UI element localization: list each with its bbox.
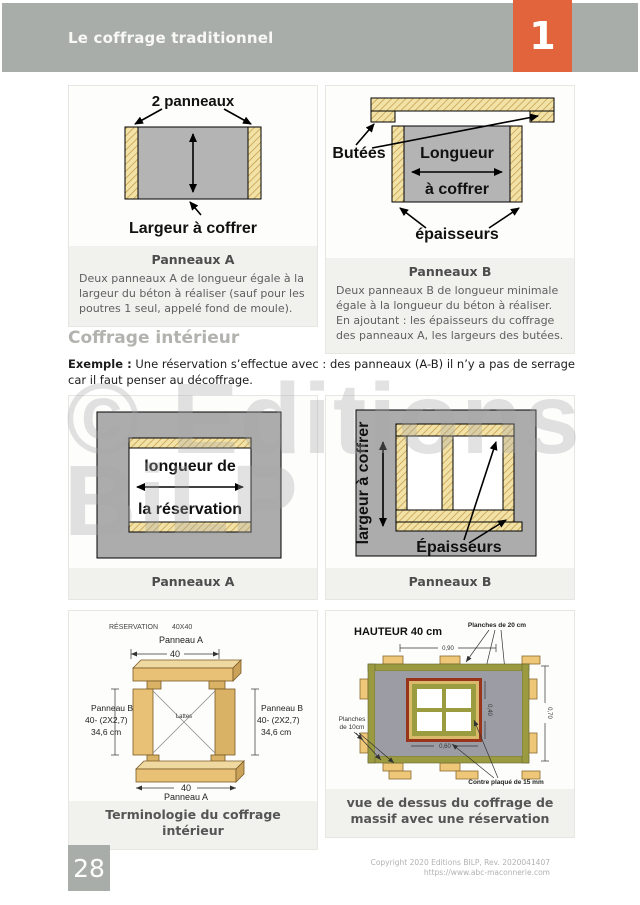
example-paragraph: Exemple : Une réservation s’effectue ave…	[68, 357, 575, 388]
figure-label-la-reservation: la réservation	[138, 501, 242, 518]
figure-label-reservation: RÉSERVATION	[109, 622, 158, 631]
figure-panneaux-b-top: Butées Longueur à coffrer épaisseurs	[326, 86, 574, 258]
board-bottom-face	[136, 761, 244, 769]
figure-card-vue-dessus: HAUTEUR 40 cm Planches de 20 cm 0,90	[325, 610, 575, 838]
figure-label-planches-20: Planches de 20 cm	[468, 622, 526, 629]
board-right	[215, 689, 235, 755]
example-text: Une réservation s’effectue avec : des pa…	[68, 357, 575, 387]
leader-arrow	[489, 208, 519, 228]
figure-label-panneau-b-left3: 34,6 cm	[91, 727, 121, 737]
dim-window-v: 0,40	[486, 704, 492, 716]
figure-caption: Panneaux A	[69, 568, 317, 599]
wood-panel-right	[510, 126, 522, 202]
butee-left	[371, 111, 395, 122]
figure-label-panneau-a-bottom: Panneau A	[164, 792, 208, 801]
figure-label-panneau-b-left2: 40- (2X2,7)	[85, 715, 128, 725]
example-label: Exemple :	[68, 357, 132, 371]
leader-arrow	[135, 109, 162, 124]
wood-bar-middle	[442, 436, 453, 510]
section-heading: Coffrage intérieur	[68, 328, 239, 348]
figure-label-planches-10-line2: de 10cm	[340, 724, 365, 731]
chapter-number-badge: 1	[513, 0, 572, 72]
leader-arrow	[190, 202, 201, 215]
cleat	[209, 681, 225, 689]
caption-title: Panneaux B	[336, 264, 564, 279]
wood-bar-top	[396, 424, 514, 436]
leader-arrow	[356, 124, 374, 145]
figure-reservation-panneaux-a: longueur de la réservation	[69, 396, 317, 568]
figure-label-epaisseurs: épaisseurs	[415, 226, 499, 243]
figure-label-2-panneaux: 2 panneaux	[152, 93, 235, 110]
figure-label-panneau-b-right3: 34,6 cm	[261, 727, 291, 737]
figure-card-panneaux-a-top: 2 panneaux Largeur à coffrer Panneaux A …	[68, 85, 318, 327]
figure-label-epaisseurs: Épaisseurs	[416, 537, 501, 556]
figure-label-longueur: Longueur	[420, 145, 494, 162]
copyright-line2: https://www.abc-maconnerie.com	[371, 868, 550, 878]
page-number: 28	[68, 845, 110, 891]
figure-label-hauteur: HAUTEUR 40 cm	[354, 626, 442, 638]
caption-title: Panneaux A	[79, 574, 307, 589]
leader-arrow	[224, 109, 251, 124]
dim-top: 0,90	[442, 646, 454, 652]
wood-bar-right	[503, 436, 514, 510]
figure-label-planches-10-line1: Planches	[339, 716, 366, 723]
copyright-line1: Copyright 2020 Editions BILP, Rev. 20200…	[371, 858, 550, 868]
wood-bar-left	[396, 436, 407, 510]
wood-panel-left	[125, 127, 138, 199]
dim-window-h: 0,60	[439, 744, 451, 750]
figure-reservation-panneaux-b: largeur à coffrer Épaisseurs	[326, 396, 574, 568]
figure-card-panneaux-b-mid: largeur à coffrer Épaisseurs Panneaux B	[325, 395, 575, 600]
caption-text: Deux panneaux A de longueur égale à la l…	[79, 271, 307, 316]
caption-title: Terminologie du coffrage intérieur	[79, 807, 307, 839]
cleat	[147, 681, 161, 689]
figure-label-a-coffrer: à coffrer	[425, 181, 489, 198]
figure-label-panneau-a-top: Panneau A	[159, 635, 203, 645]
caption-text: Deux panneaux B de longueur minimale éga…	[336, 283, 564, 343]
board-left	[133, 689, 153, 755]
figure-caption: vue de dessus du coffrage de massif avec…	[326, 789, 574, 837]
board-top-face	[133, 660, 241, 668]
leader-arrow	[400, 208, 426, 228]
figure-card-panneaux-a-mid: longueur de la réservation Panneaux A	[68, 395, 318, 600]
figure-label-size: 40X40	[172, 624, 192, 631]
wood-bar-bottom2	[396, 522, 522, 531]
figure-label-contreplaque: Contre plaqué de 15 mm	[468, 779, 544, 786]
figure-label-lattes: Lattes	[176, 714, 192, 720]
figure-caption: Panneaux B	[326, 568, 574, 599]
wood-panel-top	[129, 438, 251, 448]
figure-card-terminologie: RÉSERVATION 40X40 Panneau A 40	[68, 610, 318, 850]
wood-bar-bottom	[396, 510, 514, 522]
caption-title: Panneaux A	[79, 252, 307, 267]
figure-label-largeur: Largeur à coffrer	[129, 220, 257, 237]
dim-right: 0,70	[546, 707, 552, 719]
board-bottom-front	[136, 769, 236, 782]
figure-terminologie: RÉSERVATION 40X40 Panneau A 40	[69, 611, 317, 801]
figure-caption: Terminologie du coffrage intérieur	[69, 801, 317, 849]
figure-label-panneau-b-right1: Panneau B	[261, 703, 303, 713]
document-page: Le coffrage traditionnel 1 2 panneaux La…	[0, 0, 640, 905]
figure-vue-dessus: HAUTEUR 40 cm Planches de 20 cm 0,90	[326, 611, 574, 789]
wood-board-top	[371, 98, 554, 111]
opening-left	[407, 436, 442, 510]
figure-label-largeur-a-coffrer: largeur à coffrer	[355, 422, 372, 545]
leader-arrow	[466, 630, 489, 662]
caption-title: vue de dessus du coffrage de massif avec…	[336, 795, 564, 827]
wood-panel-left	[392, 126, 404, 202]
copyright-notice: Copyright 2020 Editions BILP, Rev. 20200…	[371, 858, 550, 878]
wood-panel-bottom	[129, 522, 251, 532]
figure-caption: Panneaux B Deux panneaux B de longueur m…	[326, 258, 574, 353]
figure-label-panneau-b-right2: 40- (2X2,7)	[257, 715, 300, 725]
figure-card-panneaux-b-top: Butées Longueur à coffrer épaisseurs Pan…	[325, 85, 575, 354]
figure-caption: Panneaux A Deux panneaux A de longueur é…	[69, 246, 317, 326]
figure-panneaux-a-top: 2 panneaux Largeur à coffrer	[69, 86, 317, 246]
chapter-title: Le coffrage traditionnel	[68, 29, 274, 47]
caption-title: Panneaux B	[336, 574, 564, 589]
board-top-front	[133, 668, 233, 681]
wood-panel-right	[248, 127, 261, 199]
dim-top: 40	[170, 649, 180, 659]
figure-label-panneau-b-left1: Panneau B	[91, 703, 133, 713]
figure-label-longueur-de: longueur de	[144, 458, 236, 475]
